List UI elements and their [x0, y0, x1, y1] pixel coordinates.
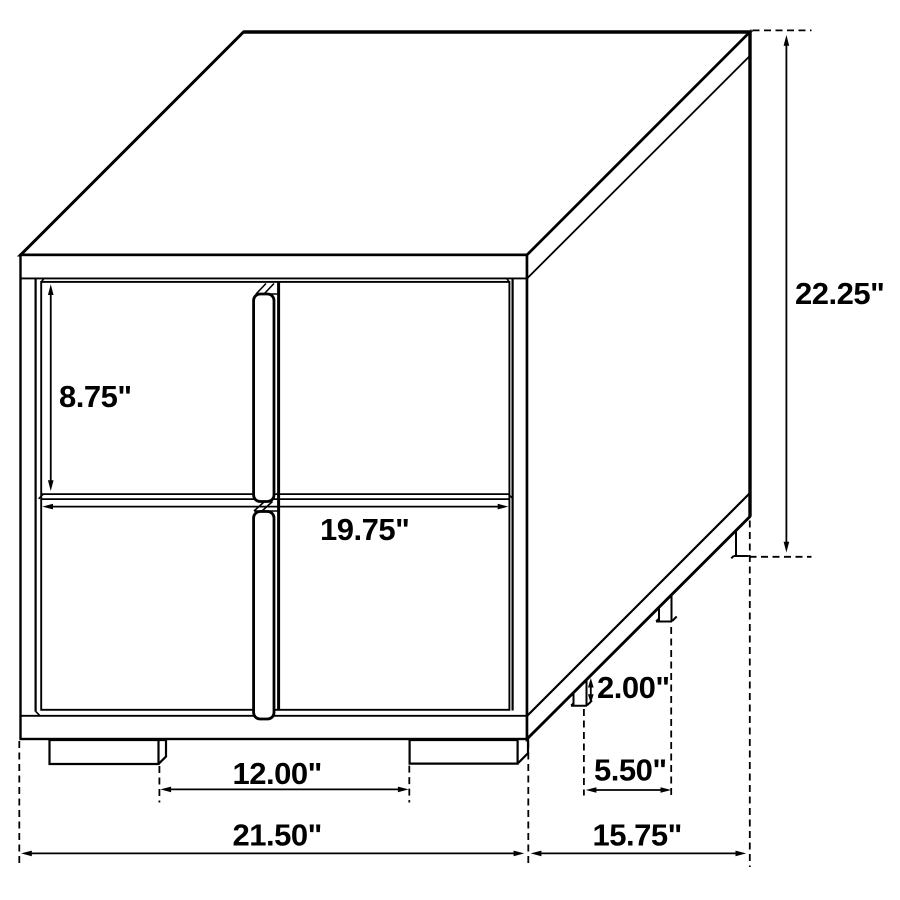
- svg-text:8.75": 8.75": [59, 379, 132, 414]
- svg-text:12.00": 12.00": [233, 756, 322, 791]
- svg-text:5.50": 5.50": [594, 753, 667, 788]
- svg-text:15.75": 15.75": [593, 818, 682, 853]
- svg-text:21.50": 21.50": [233, 818, 322, 853]
- svg-text:2.00": 2.00": [597, 670, 670, 705]
- svg-text:22.25": 22.25": [795, 276, 884, 311]
- svg-text:19.75": 19.75": [320, 512, 409, 547]
